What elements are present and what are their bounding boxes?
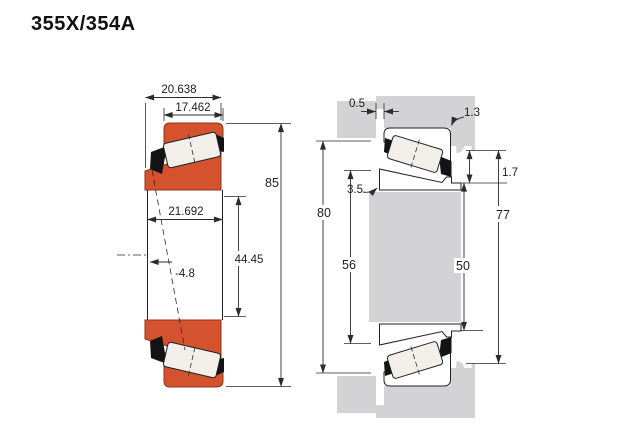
dim-shaft-shoulder: 56 xyxy=(342,258,356,272)
dim-overall-width: 21.692 xyxy=(168,206,203,218)
dim-cone-backing: 50 xyxy=(456,259,470,273)
dim-shaft-fillet: 3.5 xyxy=(347,184,363,196)
dim-cone-width: 20.638 xyxy=(161,84,196,96)
dim-bore-diameter: 44.45 xyxy=(235,254,264,266)
dim-housing-shoulder: 80 xyxy=(317,206,331,220)
dim-backing-ledge: 1.7 xyxy=(502,167,518,179)
catalog-page: { "header": { "title": "355X/354A" }, "c… xyxy=(0,0,640,440)
dim-cup-width: 17.462 xyxy=(175,102,210,114)
dim-load-center: -4.8 xyxy=(175,268,195,280)
right-view-mounting: 0.5 1.3 3.5 80 56 77 50 1.7 xyxy=(315,96,518,418)
dim-side-clearance: 0.5 xyxy=(349,98,365,110)
shaft xyxy=(369,192,461,322)
page-title: 355X/354A xyxy=(31,13,136,36)
dim-housing-bore: 77 xyxy=(496,208,510,222)
left-view-cross-section: 20.638 17.462 85 21.692 44.45 -4.8 xyxy=(117,84,291,387)
dim-outer-diameter: 85 xyxy=(265,176,279,190)
dim-housing-fillet: 1.3 xyxy=(464,107,480,119)
bearing-drawing: 20.638 17.462 85 21.692 44.45 -4.8 xyxy=(0,0,640,440)
